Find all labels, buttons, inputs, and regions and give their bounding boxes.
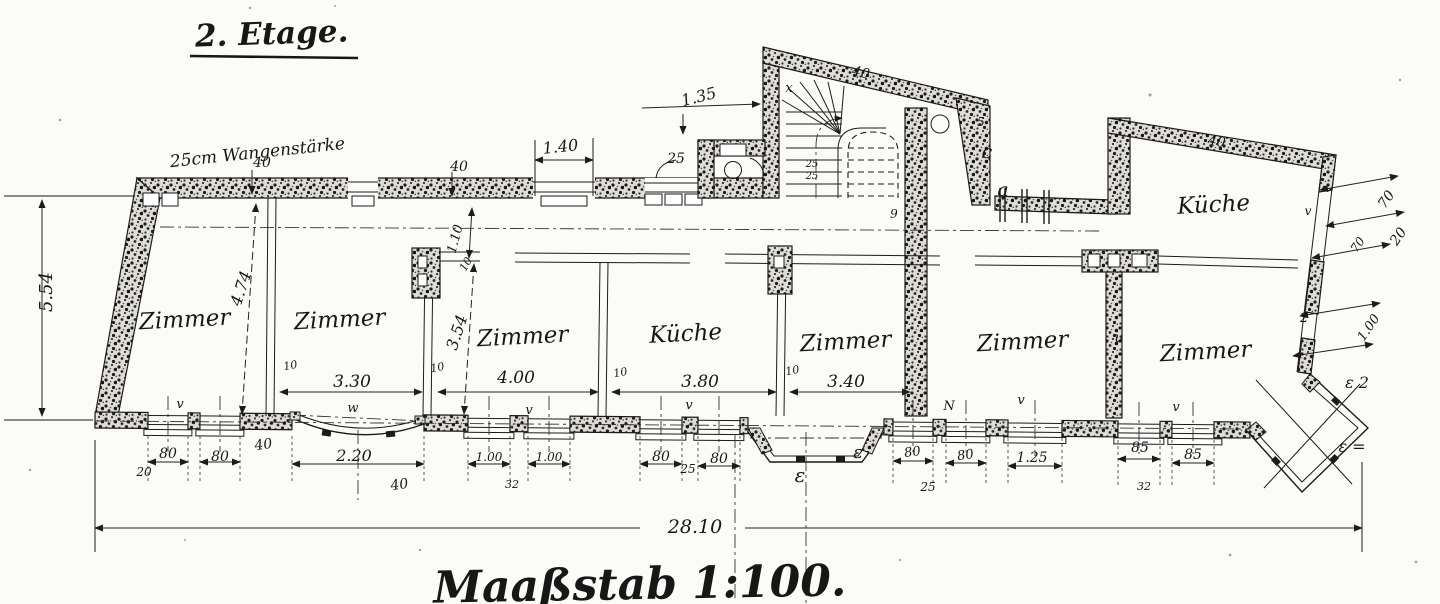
room-label-zimmer-5: Zimmer [975, 327, 1071, 358]
window-mark: v [1017, 393, 1025, 408]
dim-wall10-c: 10 [612, 365, 628, 380]
window-mark: u [1114, 330, 1123, 346]
floor-plan-scan: 2. Etage. Maaßstab 1:100. 25cm Wangenstä… [0, 0, 1440, 604]
dim-pier32-a: 32 [505, 478, 519, 491]
dim-width-room3: 4.00 [496, 368, 535, 388]
stair-tower-top-wall [763, 47, 988, 116]
dim-right100: 1.00 [1355, 312, 1384, 344]
dim-wall40-f: 40 [389, 476, 410, 494]
mark-5: 5 [977, 115, 985, 129]
dim-height-left: 5.54 [36, 272, 57, 312]
stair-tower-left-wall [763, 63, 779, 198]
dim-wall40-e: 40 [253, 436, 274, 454]
dim-win100-b: 1.00 [536, 450, 563, 464]
mark-epsilon-1: ε [795, 463, 806, 487]
room-label-zimmer-6: Zimmer [1158, 337, 1254, 368]
room-label-zimmer-1: Zimmer [137, 305, 233, 336]
cross-wall-thick [905, 108, 927, 416]
chimney [768, 246, 792, 294]
mark-epsilon-4: ε = [1338, 437, 1365, 456]
dim-pier32-b: 32 [1137, 480, 1151, 493]
dim-win80-b: 80 [211, 449, 229, 465]
dim-wall40-d: 40 [1206, 133, 1227, 152]
dim-stair-tread-a: 25 [805, 159, 819, 170]
room-label-kueche-main: Küche [648, 319, 723, 349]
dim-wall10-e: 10 [457, 255, 475, 274]
wc-door-swing [750, 158, 764, 176]
dim-win20: 20 [135, 465, 152, 479]
room-label-zimmer-2: Zimmer [292, 305, 388, 336]
dim-wall10-a: 10 [282, 358, 298, 373]
window-mark: N [942, 399, 955, 414]
dim-win80-e: 80 [903, 444, 921, 461]
title-underline [190, 56, 358, 58]
dim-depth-room1: 4.74 [226, 268, 255, 309]
plan-title: 2. Etage. [193, 13, 349, 54]
room-label-zimmer-3: Zimmer [475, 322, 571, 353]
dim-width-room2: 3.30 [333, 372, 371, 392]
dim-right20: 20 [1386, 225, 1410, 250]
dim-right70-a: 70 [1375, 188, 1398, 212]
window-mark: v [525, 403, 533, 418]
dim-right2: 2 [1299, 311, 1308, 326]
dim-win85-b: 85 [1184, 447, 1202, 463]
left-wall [95, 178, 160, 416]
dim-win125: 1.25 [1016, 450, 1047, 466]
dim-pier25-b: 25 [919, 480, 935, 494]
window-mark: v [1172, 400, 1180, 415]
stair-return-flight [848, 132, 898, 198]
dim-wall40-a: 40 [252, 155, 271, 171]
wc-cistern [720, 144, 746, 156]
mark-epsilon-3: ε 2 [1345, 373, 1369, 392]
dim-stair-tread-b: 25 [805, 171, 819, 182]
dim-depth-room3: 3.54 [442, 312, 471, 352]
mark-a: a [997, 179, 1008, 201]
room-label-kueche-upper: Küche [1176, 190, 1251, 220]
dim-wall25: 25 [666, 151, 685, 167]
dim-win80-a: 80 [159, 446, 177, 462]
dim-bay-width: 2.20 [335, 446, 372, 465]
plan-drawing: 2. Etage. Maaßstab 1:100. 25cm Wangenstä… [0, 0, 1440, 604]
mark-x: x [785, 81, 793, 96]
dim-wall10-d: 10 [784, 363, 800, 378]
bay-trapezoid [748, 428, 884, 462]
dim-wall40-b: 40 [449, 159, 468, 175]
dim-wall10-b: 10 [429, 360, 445, 375]
scale-label: Maaßstab 1:100. [431, 555, 847, 604]
right-wall-segment [1305, 260, 1324, 314]
mark-9: 9 [890, 207, 898, 221]
wc-toilet [725, 162, 742, 179]
top-wall-right [995, 196, 1112, 214]
window-mark: v [685, 398, 693, 413]
mark-epsilon-2: ε [853, 442, 863, 463]
dim-width-kitchen: 3.80 [681, 372, 719, 392]
window-mark: v [1305, 204, 1312, 218]
dim-width-room4: 3.40 [827, 372, 865, 392]
mark-c: c [982, 141, 993, 163]
dim-right70-b: 70 [1348, 234, 1368, 255]
shaft-circle [931, 115, 949, 133]
dim-win80-c: 80 [652, 449, 670, 465]
window-mark: w [347, 401, 358, 416]
dim-win85-a: 85 [1131, 440, 1149, 456]
room-label-zimmer-4: Zimmer [798, 327, 894, 358]
dim-win80-f: 80 [956, 447, 974, 464]
dim-overall-width: 28.10 [667, 516, 722, 538]
stair-railing [838, 128, 886, 198]
labels: 2. Etage. Maaßstab 1:100. 25cm Wangenstä… [36, 13, 1410, 604]
interior-walls [266, 188, 1298, 418]
staircase [782, 80, 898, 198]
dim-stair-width: 1.35 [679, 83, 718, 110]
window-mark: v [176, 397, 184, 412]
dim-win80-d: 80 [710, 451, 728, 467]
dim-win100-a: 1.00 [476, 450, 503, 464]
exterior-walls [95, 47, 1336, 416]
dim-top-window: 1.40 [542, 135, 579, 158]
dim-pier25-a: 25 [679, 462, 695, 476]
